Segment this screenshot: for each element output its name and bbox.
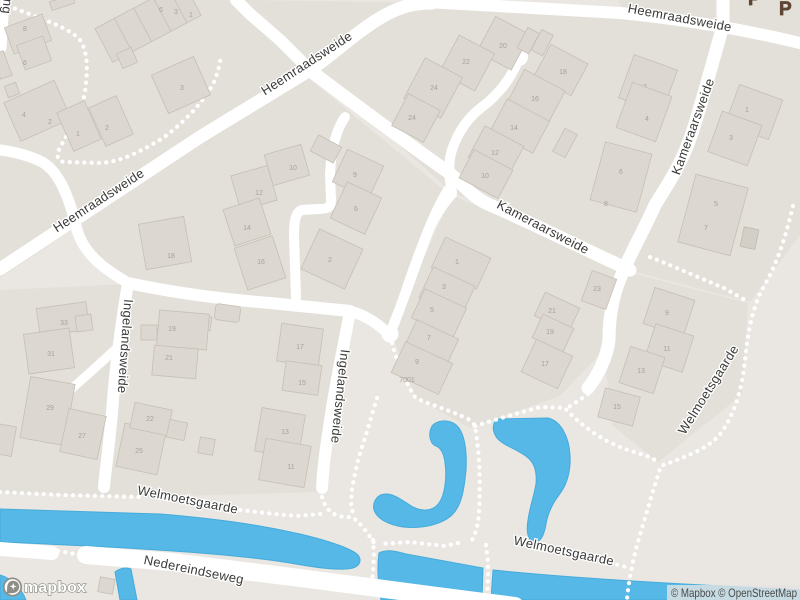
svg-text:mapbox: mapbox [24, 580, 86, 596]
svg-text:7001: 7001 [399, 377, 415, 384]
svg-text:5: 5 [714, 201, 718, 208]
svg-text:24: 24 [430, 85, 438, 92]
svg-text:1: 1 [745, 107, 749, 114]
svg-text:2: 2 [328, 257, 332, 264]
svg-text:29: 29 [46, 405, 54, 412]
svg-text:19: 19 [546, 329, 554, 336]
svg-text:7: 7 [704, 225, 708, 232]
svg-text:23: 23 [593, 286, 601, 293]
svg-text:3: 3 [442, 284, 446, 291]
svg-text:25: 25 [135, 448, 143, 455]
svg-text:12: 12 [255, 190, 263, 197]
svg-text:20: 20 [499, 43, 507, 50]
svg-text:3: 3 [729, 135, 733, 142]
svg-text:4: 4 [645, 116, 649, 123]
svg-text:3: 3 [174, 9, 178, 16]
svg-text:1: 1 [189, 12, 193, 19]
svg-text:18: 18 [167, 253, 175, 260]
svg-text:6: 6 [619, 169, 623, 176]
svg-text:12: 12 [491, 150, 499, 157]
svg-text:17: 17 [541, 361, 549, 368]
svg-text:2: 2 [105, 125, 109, 132]
svg-text:17: 17 [296, 344, 304, 351]
svg-text:6: 6 [23, 60, 27, 67]
svg-text:16: 16 [257, 259, 265, 266]
svg-text:7: 7 [427, 335, 431, 342]
svg-text:3: 3 [180, 85, 184, 92]
svg-text:9: 9 [415, 359, 419, 366]
svg-text:22: 22 [146, 416, 154, 423]
svg-text:14: 14 [243, 225, 251, 232]
svg-text:2: 2 [48, 119, 52, 126]
svg-text:13: 13 [637, 368, 645, 375]
svg-text:19: 19 [168, 326, 176, 333]
svg-text:© Mapbox © OpenStreetMap: © Mapbox © OpenStreetMap [671, 586, 797, 600]
svg-text:ng: ng [0, 0, 16, 15]
svg-text:9: 9 [665, 310, 669, 317]
svg-text:21: 21 [548, 308, 556, 315]
svg-text:6: 6 [159, 7, 163, 14]
svg-text:P: P [748, 0, 761, 10]
svg-text:22: 22 [462, 59, 470, 66]
svg-text:4: 4 [22, 112, 26, 119]
svg-text:9: 9 [353, 172, 357, 179]
svg-text:14: 14 [510, 125, 518, 132]
svg-text:31: 31 [47, 351, 55, 358]
svg-text:21: 21 [165, 355, 173, 362]
svg-text:16: 16 [531, 96, 539, 103]
svg-text:15: 15 [613, 404, 621, 411]
svg-text:18: 18 [559, 69, 567, 76]
svg-text:11: 11 [287, 464, 294, 471]
svg-text:5: 5 [430, 307, 434, 314]
svg-text:33: 33 [60, 320, 68, 327]
svg-text:11: 11 [663, 346, 670, 353]
svg-text:6: 6 [354, 206, 358, 213]
svg-text:8: 8 [604, 201, 608, 208]
svg-text:8: 8 [23, 26, 27, 33]
svg-text:13: 13 [281, 429, 289, 436]
svg-text:15: 15 [298, 380, 306, 387]
svg-text:10: 10 [481, 173, 489, 180]
svg-text:10: 10 [289, 165, 297, 172]
svg-text:1: 1 [76, 131, 80, 138]
svg-text:27: 27 [78, 433, 86, 440]
svg-text:P: P [779, 0, 792, 20]
svg-text:24: 24 [408, 115, 416, 122]
svg-text:1: 1 [455, 259, 459, 266]
